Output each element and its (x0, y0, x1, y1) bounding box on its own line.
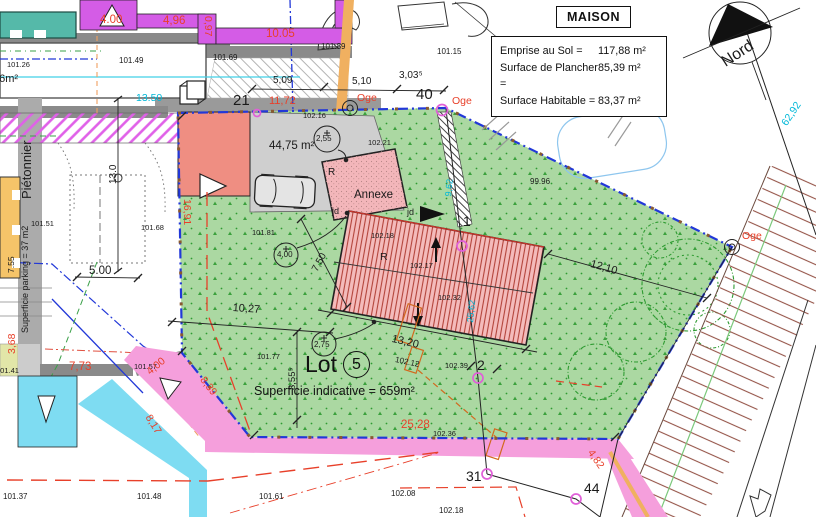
legend-value: 83,37 m² (598, 93, 660, 110)
legend-value: 85,39 m² (598, 60, 660, 93)
maison-panel: Emprise au Sol = 117,88 m² Surface de Pl… (491, 36, 667, 117)
site-plan: 36m²101.26101.49101.69101.89101.15100.00… (0, 0, 816, 517)
lot-word: Lot (305, 351, 337, 378)
plan-drawing (0, 0, 816, 517)
legend-row-plancher: Surface de Plancher = 85,39 m² (500, 60, 660, 93)
north-arrow (683, 2, 800, 100)
lot-number-badge: 5 (343, 351, 370, 378)
lot-title: Lot 5 (305, 351, 370, 378)
annexe-building (322, 149, 407, 220)
legend-row-emprise: Emprise au Sol = 117,88 m² (500, 43, 660, 60)
legend-row-habitable: Surface Habitable = 83,37 m² (500, 93, 660, 110)
lot-area-note: Superficie indicative = 659m² (254, 384, 415, 398)
car-icon (254, 174, 316, 209)
legend-label: Emprise au Sol = (500, 43, 598, 60)
maison-title: MAISON (556, 6, 631, 28)
legend-label: Surface Habitable = (500, 93, 598, 110)
legend-label: Surface de Plancher = (500, 60, 598, 93)
legend-value: 117,88 m² (598, 43, 660, 60)
flow-arrow-icon (750, 489, 771, 517)
